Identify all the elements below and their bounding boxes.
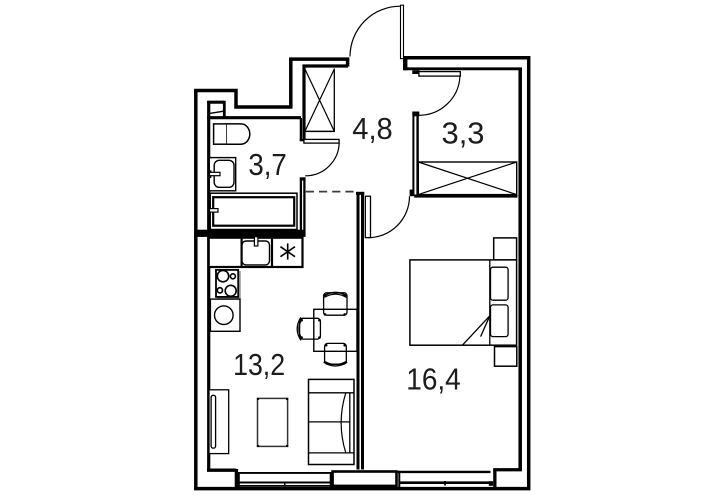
svg-text:3,7: 3,7 bbox=[248, 147, 287, 182]
svg-text:13,2: 13,2 bbox=[233, 347, 285, 382]
svg-text:4,8: 4,8 bbox=[352, 111, 393, 146]
svg-text:3,3: 3,3 bbox=[442, 116, 485, 151]
svg-text:16,4: 16,4 bbox=[406, 362, 461, 397]
